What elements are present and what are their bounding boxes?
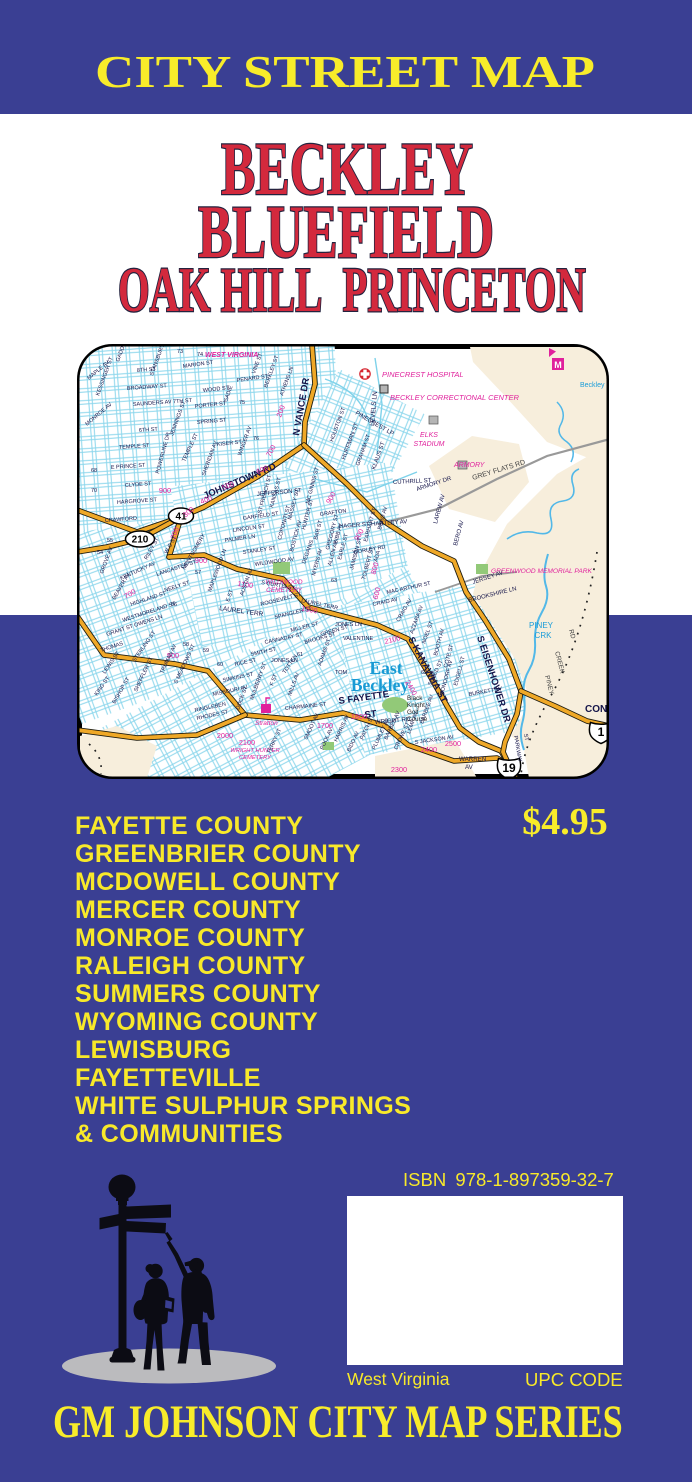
svg-text:210: 210 — [132, 535, 149, 546]
svg-text:2000: 2000 — [217, 731, 233, 740]
svg-text:75: 75 — [239, 400, 245, 406]
svg-text:CITY STREET MAP: CITY STREET MAP — [95, 46, 595, 97]
svg-text:Stratton: Stratton — [255, 720, 278, 727]
svg-text:WARREN: WARREN — [459, 756, 486, 763]
svg-text:1800: 1800 — [351, 712, 367, 721]
svg-text:2500: 2500 — [445, 739, 461, 748]
svg-text:OAK HILL PRINCETON: OAK HILL PRINCETON — [118, 256, 586, 325]
svg-text:68: 68 — [91, 468, 97, 474]
svg-text:2300: 2300 — [391, 765, 407, 774]
svg-text:76: 76 — [253, 436, 259, 442]
svg-text:WEST VIRGINIA: WEST VIRGINIA — [205, 352, 258, 359]
svg-text:Knight: Knight — [407, 702, 425, 709]
svg-text:19: 19 — [502, 761, 516, 775]
svg-text:ELKS: ELKS — [420, 432, 438, 439]
svg-text:60: 60 — [217, 662, 223, 668]
svg-text:M: M — [554, 360, 562, 370]
svg-text:CON: CON — [585, 704, 607, 715]
svg-text:74: 74 — [197, 352, 203, 358]
svg-text:JONES LN: JONES LN — [335, 622, 362, 628]
svg-text:PINEY: PINEY — [529, 621, 554, 630]
svg-text:TOM: TOM — [335, 670, 348, 676]
svg-text:900: 900 — [195, 556, 207, 565]
svg-text:CEMETERY: CEMETERY — [239, 755, 272, 761]
svg-text:73: 73 — [177, 349, 183, 355]
svg-text:GREENWOOD MEMORIAL PARK: GREENWOOD MEMORIAL PARK — [491, 568, 592, 575]
svg-text:900: 900 — [159, 486, 171, 495]
svg-text:STADIUM: STADIUM — [414, 441, 445, 448]
svg-text:AV: AV — [465, 764, 474, 771]
svg-text:58: 58 — [183, 642, 189, 648]
svg-text:63: 63 — [331, 578, 337, 584]
svg-text:56: 56 — [171, 602, 177, 608]
svg-text:PINECREST HOSPITAL: PINECREST HOSPITAL — [382, 370, 464, 379]
svg-text:Black: Black — [407, 695, 423, 702]
svg-text:2100: 2100 — [239, 738, 255, 747]
svg-text:VALENTINE: VALENTINE — [343, 636, 373, 642]
svg-text:57: 57 — [195, 570, 201, 576]
svg-text:ARMORY: ARMORY — [453, 462, 486, 469]
svg-text:70: 70 — [91, 488, 97, 494]
svg-text:54: 54 — [97, 550, 103, 556]
svg-text:2400: 2400 — [421, 745, 437, 754]
svg-text:1: 1 — [598, 725, 605, 739]
svg-text:GM JOHNSON CITY MAP SERIES: GM JOHNSON CITY MAP SERIES — [53, 1397, 623, 1449]
svg-text:BECKLEY CORRECTIONAL CENTER: BECKLEY CORRECTIONAL CENTER — [390, 393, 520, 402]
svg-text:62: 62 — [421, 670, 427, 676]
svg-text:Beckley: Beckley — [580, 382, 605, 389]
svg-text:55: 55 — [107, 538, 113, 544]
svg-text:59: 59 — [203, 648, 209, 654]
svg-text:CRK: CRK — [535, 631, 553, 640]
